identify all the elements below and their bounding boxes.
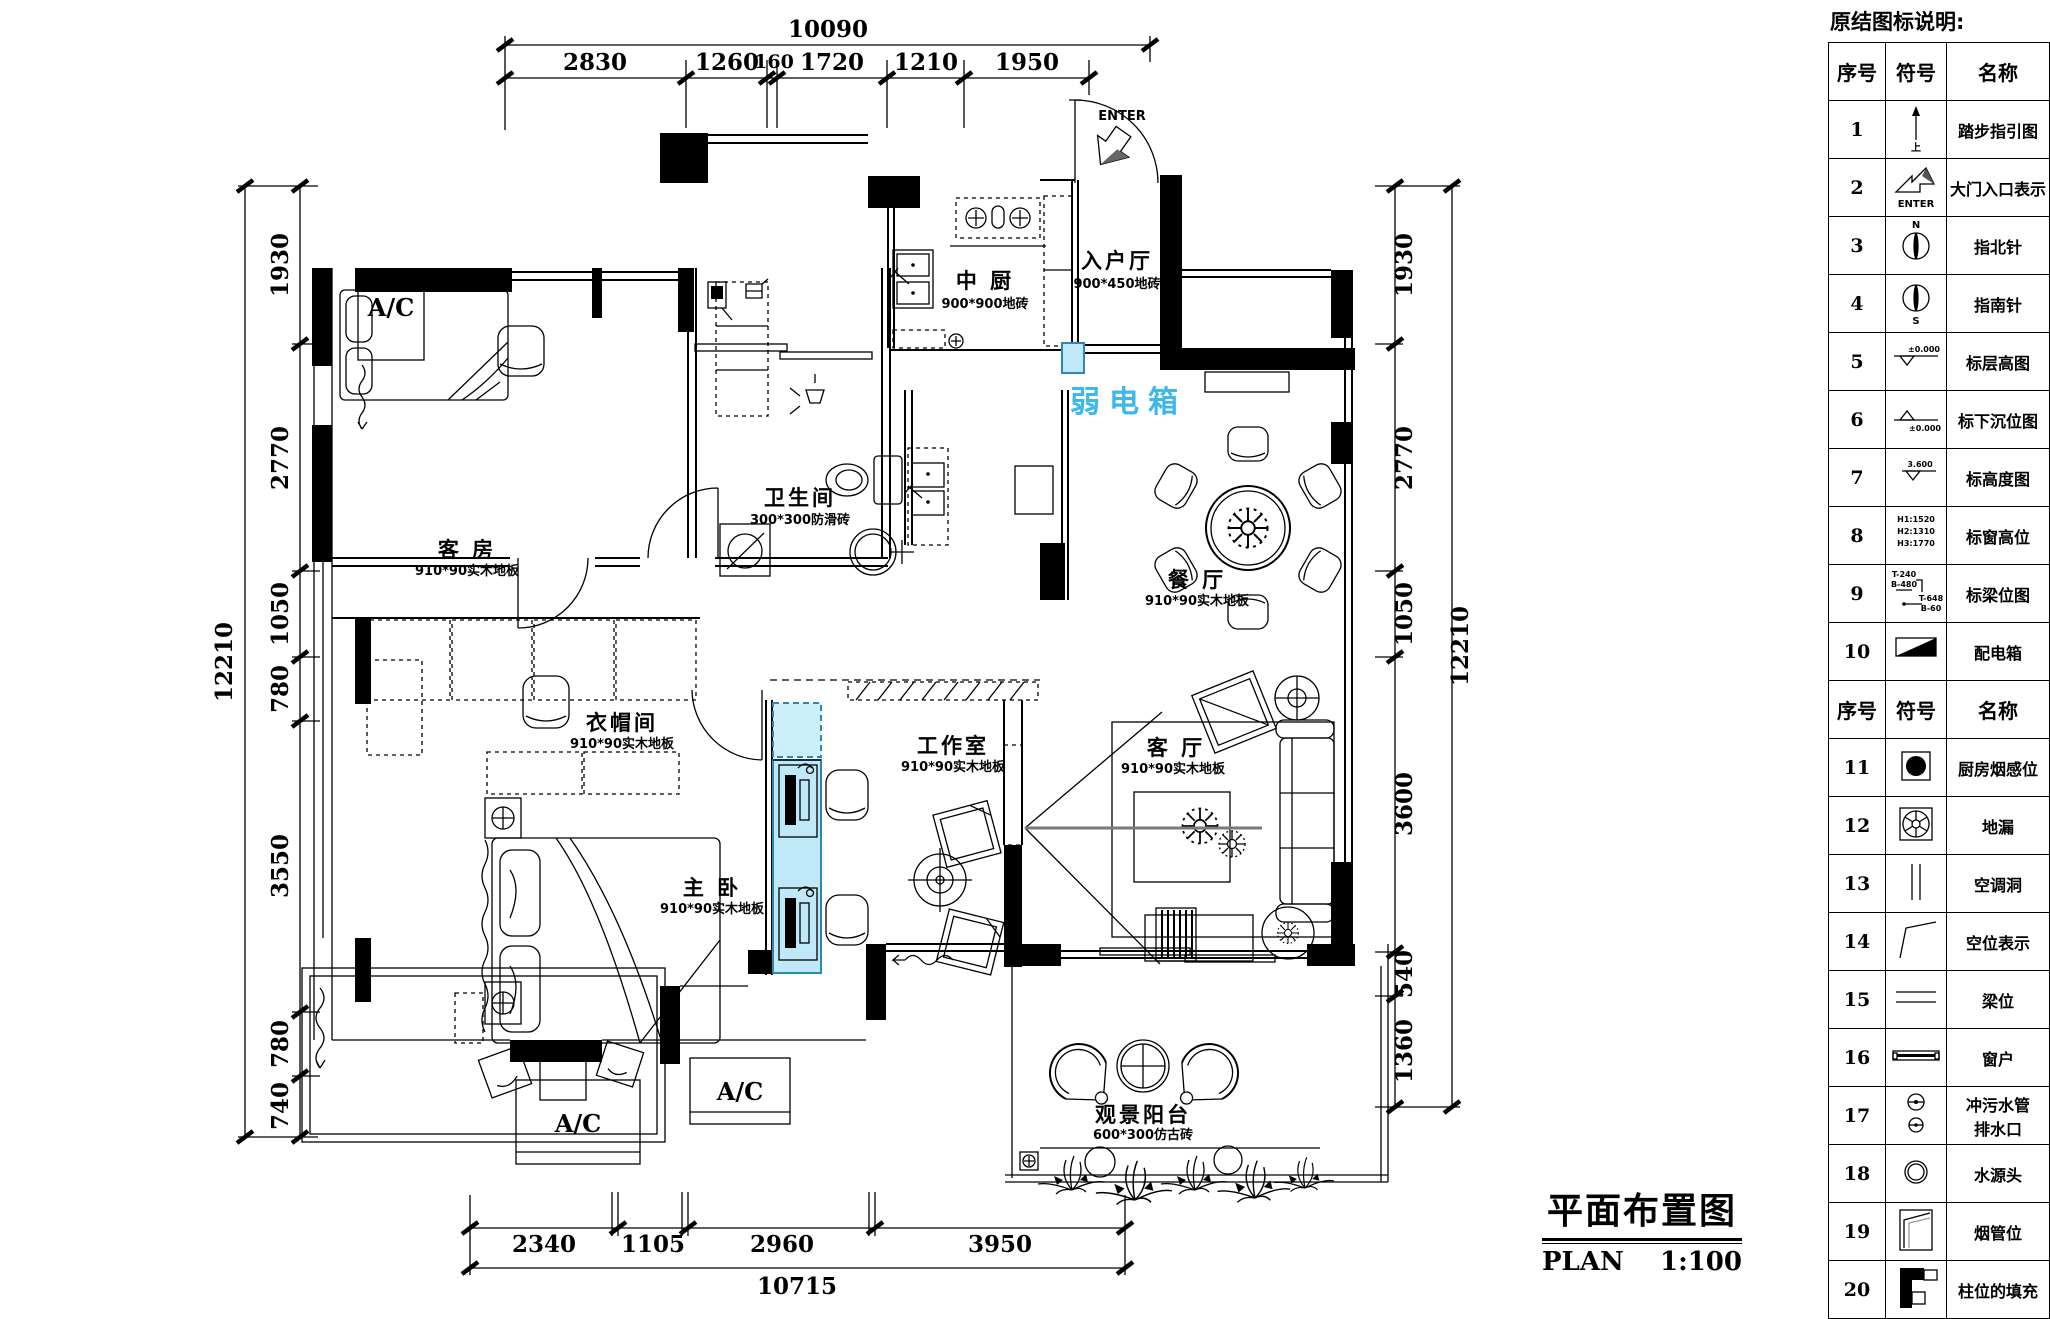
distribution-box-icon <box>1888 624 1944 676</box>
room-west-kitchen: 西 厨 900*900地砖 <box>905 448 1053 545</box>
kitchen-counter <box>893 330 945 348</box>
legend-panel: 原结图标说明: 序号 符号 名称 1 上 踏步指引图 2 ENTER 大门入口表… <box>1828 0 2050 1310</box>
ac-unit-low: A/C <box>516 1080 640 1164</box>
ac-unit-mid: A/C <box>690 1058 790 1124</box>
legend-name: 标窗高位 <box>1947 507 2050 565</box>
legend-header-symbol: 符号 <box>1886 681 1947 739</box>
column-fill-icon <box>1888 1262 1944 1314</box>
legend-name: 地漏 <box>1947 797 2050 855</box>
legend-no: 5 <box>1829 333 1886 391</box>
window-height-mark-icon: H1:1520H2:1310H3:1770 <box>1888 508 1944 560</box>
legend-symbol-text: T-240 <box>1892 570 1917 579</box>
enter-label: ENTER <box>1098 109 1146 124</box>
dim-right-seg: 1050 <box>1391 582 1418 646</box>
dim-left-seg: 3550 <box>267 834 294 898</box>
legend-row: 3 N 指北针 <box>1829 217 2050 275</box>
room-living: 客 厅 910*90实木地板 <box>1004 671 1334 964</box>
dimension-chain-left: 12210 1930 2770 1050 780 3550 780 740 <box>211 180 320 1143</box>
legend-row: 14 空位表示 <box>1829 913 2050 971</box>
legend-header-symbol: 符号 <box>1886 43 1947 101</box>
room-label: 观景阳台 <box>1095 1103 1191 1127</box>
legend-row: 13 空调洞 <box>1829 855 2050 913</box>
window-icon <box>1888 1030 1944 1082</box>
legend-symbol-text: B-60 <box>1921 604 1942 613</box>
coffee-table <box>1134 792 1230 882</box>
nightstand <box>485 798 521 838</box>
legend-name: 标高度图 <box>1947 449 2050 507</box>
legend-header-row: 序号 符号 名称 <box>1829 43 2050 101</box>
dim-left-seg: 780 <box>267 1020 294 1068</box>
legend-name: 标梁位图 <box>1947 565 2050 623</box>
room-label: 主 卧 <box>683 876 741 900</box>
legend-row: 9 T-240B-480T-648B-60 标梁位图 <box>1829 565 2050 623</box>
dim-top-seg: 1720 <box>800 49 864 76</box>
shower-head <box>790 374 824 414</box>
studio-window-beam <box>770 680 1040 700</box>
beam-position-mark-icon: T-240B-480T-648B-60 <box>1888 566 1944 618</box>
legend-no: 4 <box>1829 275 1886 333</box>
room-spec: 300*300防滑砖 <box>750 512 850 528</box>
legend-no: 18 <box>1829 1145 1886 1203</box>
legend-no: 1 <box>1829 101 1886 159</box>
legend-symbol-text: 上 <box>1911 141 1921 154</box>
legend-row: 8 H1:1520H2:1310H3:1770 标窗高位 <box>1829 507 2050 565</box>
legend-name-2line: 冲污水管排水口 <box>1947 1087 2050 1145</box>
legend-name: 窗户 <box>1947 1029 2050 1087</box>
sliding-door-kitchen <box>695 344 872 359</box>
dim-left-total: 12210 <box>211 622 238 702</box>
room-label: 衣帽间 <box>586 711 658 735</box>
drawing-scale: 1:100 <box>1660 1247 1742 1277</box>
north-compass-icon: N <box>1888 218 1944 270</box>
legend-row: 17 冲污水管排水口 <box>1829 1087 2050 1145</box>
desk-chair <box>826 895 868 945</box>
floor-drain-icon <box>1888 798 1944 850</box>
room-spec: 910*90实木地板 <box>901 759 1006 775</box>
legend-name: 排水口 <box>1947 1116 2049 1140</box>
legend-no: 8 <box>1829 507 1886 565</box>
legend-no: 16 <box>1829 1029 1886 1087</box>
guest-chair <box>498 326 544 376</box>
kitchen-smoke-detector-icon <box>1888 740 1944 792</box>
dim-left-seg: 1930 <box>267 233 294 297</box>
room-view-balcony: 观景阳台 600*300仿古砖 <box>1005 944 1388 1205</box>
dim-right-total: 12210 <box>1447 606 1474 686</box>
legend-name: 踏步指引图 <box>1947 101 2050 159</box>
dim-top-seg: 160 <box>754 51 794 73</box>
room-label: 客 房 <box>438 538 496 562</box>
beam-icon <box>1888 972 1944 1024</box>
legend-no: 7 <box>1829 449 1886 507</box>
legend-no: 11 <box>1829 739 1886 797</box>
legend-symbol-text: H3:1770 <box>1897 539 1935 548</box>
dim-left-seg: 740 <box>267 1082 294 1130</box>
desk-strip-highlight <box>773 703 821 973</box>
entrance-arrow-icon: ENTER <box>1888 160 1944 212</box>
room-dining: 餐 厅 910*90实木地板 <box>1145 427 1345 629</box>
ac-label: A/C <box>716 1077 764 1106</box>
legend-symbol-text: H1:1520 <box>1897 515 1935 524</box>
entry-bench <box>1205 372 1289 392</box>
legend-no: 14 <box>1829 913 1886 971</box>
room-spec: 910*90实木地板 <box>1145 593 1250 609</box>
legend-header-name: 名称 <box>1947 43 2050 101</box>
room-label: 工作室 <box>917 734 989 758</box>
dim-right-seg: 1930 <box>1391 233 1418 297</box>
dim-top-seg: 1260 <box>695 49 759 76</box>
legend-name: 梁位 <box>1947 971 2050 1029</box>
legend-symbol-text: ±0.000 <box>1908 345 1940 354</box>
dim-top-seg: 1210 <box>894 49 958 76</box>
master-door <box>692 690 762 760</box>
dim-right-seg: 2770 <box>1391 426 1418 490</box>
dimension-chain-right: 12210 1930 2770 1050 3600 540 1360 <box>1375 180 1474 1113</box>
legend-symbol-text: S <box>1912 316 1919 327</box>
dim-top-seg: 2830 <box>563 49 627 76</box>
legend-header-no: 序号 <box>1829 681 1886 739</box>
legend-name: 标下沉位图 <box>1947 391 2050 449</box>
switch-icons <box>708 279 768 320</box>
legend-row: 5 ±0.000 标层高图 <box>1829 333 2050 391</box>
legend-symbol-text: N <box>1912 220 1920 231</box>
legend-name: 空调洞 <box>1947 855 2050 913</box>
legend-no: 19 <box>1829 1203 1886 1261</box>
legend-header-name: 名称 <box>1947 681 2050 739</box>
balcony-table <box>1117 1040 1169 1092</box>
legend-symbol-text: B-480 <box>1891 580 1918 589</box>
empty-position-icon <box>1888 914 1944 966</box>
legend-symbol-text: ENTER <box>1898 199 1935 210</box>
dim-left-seg: 780 <box>267 665 294 713</box>
room-spec: 910*90实木地板 <box>415 563 520 579</box>
ac-label: A/C <box>554 1109 602 1138</box>
ac-label: A/C <box>367 293 415 322</box>
dim-right-seg: 540 <box>1391 950 1418 998</box>
step-guide-icon: 上 <box>1888 102 1944 154</box>
master-bed <box>482 838 720 1043</box>
drawing-code: PLAN <box>1542 1247 1624 1277</box>
room-label: 入户厅 <box>1081 249 1153 273</box>
legend-name: 空位表示 <box>1947 913 2050 971</box>
room-label: 餐 厅 <box>1168 568 1226 592</box>
room-spec: 600*300仿古砖 <box>1093 1127 1193 1143</box>
sunken-level-mark-icon: ±0.000 <box>1888 392 1944 444</box>
legend-row: 12 地漏 <box>1829 797 2050 855</box>
legend-no: 15 <box>1829 971 1886 1029</box>
kitchen-sink-cabinet <box>890 250 933 308</box>
legend-row: 16 窗户 <box>1829 1029 2050 1087</box>
room-spec: 910*90实木地板 <box>570 736 675 752</box>
room-spec: 910*90实木地板 <box>1121 761 1226 777</box>
legend-no: 10 <box>1829 623 1886 681</box>
ac-unit-top-left: A/C <box>358 272 424 429</box>
legend-table: 序号 符号 名称 1 上 踏步指引图 2 ENTER 大门入口表示 3 N 指北… <box>1828 42 2050 1319</box>
dim-bottom-total: 10715 <box>757 1273 837 1300</box>
floor-fan <box>1275 676 1319 720</box>
legend-row: 18 水源头 <box>1829 1145 2050 1203</box>
sewage-drain-icon <box>1888 1088 1944 1140</box>
legend-symbol-text: T-648 <box>1919 594 1944 603</box>
dim-bottom-seg: 2340 <box>512 1231 576 1258</box>
entry-door: ENTER <box>1069 100 1158 183</box>
sofa <box>1276 720 1334 922</box>
desk-chair <box>826 770 868 820</box>
floor-level-mark-icon: ±0.000 <box>1888 334 1944 386</box>
legend-name: 配电箱 <box>1947 623 2050 681</box>
legend-row: 4 S 指南针 <box>1829 275 2050 333</box>
dim-right-seg: 1360 <box>1391 1019 1418 1083</box>
room-master-bedroom: 主 卧 910*90实木地板 <box>455 798 765 1043</box>
room-label: 卫生间 <box>764 486 836 510</box>
legend-row: 10 配电箱 <box>1829 623 2050 681</box>
legend-no: 6 <box>1829 391 1886 449</box>
tv-bench <box>1145 908 1253 961</box>
dim-left-seg: 2770 <box>267 426 294 490</box>
legend-symbol-text: ±0.000 <box>1909 424 1941 433</box>
room-spec: 910*90实木地板 <box>660 901 765 917</box>
floor-plan-drawing: 10090 2830 1260 160 1720 1210 1950 12210… <box>0 0 1760 1310</box>
legend-row: 11 厨房烟感位 <box>1829 739 2050 797</box>
legend-row: 1 上 踏步指引图 <box>1829 101 2050 159</box>
dim-left-seg: 1050 <box>267 582 294 646</box>
legend-name: 指北针 <box>1947 217 2050 275</box>
weak-current-label: 弱电箱 <box>1070 385 1187 420</box>
dim-bottom-seg: 2960 <box>750 1231 814 1258</box>
studio-table <box>933 801 1001 868</box>
title-block: 平面布置图 PLAN 1:100 <box>1542 1182 1742 1277</box>
dim-right-seg: 3600 <box>1391 772 1418 836</box>
legend-row: 2 ENTER 大门入口表示 <box>1829 159 2050 217</box>
room-studio: 工作室 910*90实木地板 <box>773 703 1006 975</box>
dimension-chain-bottom: 2340 1105 2960 3950 10715 <box>462 1192 1133 1300</box>
legend-symbol-text: H2:1310 <box>1897 527 1935 536</box>
legend-name: 厨房烟感位 <box>1947 739 2050 797</box>
legend-row: 15 梁位 <box>1829 971 2050 1029</box>
water-source-icon <box>1888 1146 1944 1198</box>
south-compass-icon: S <box>1888 276 1944 328</box>
dim-bottom-seg: 1105 <box>621 1231 685 1258</box>
dim-top-total: 10090 <box>788 16 868 43</box>
legend-name: 水源头 <box>1947 1145 2050 1203</box>
dim-top-seg: 1950 <box>995 49 1059 76</box>
breakfast-table: 西 厨 900*900地砖 <box>1015 466 1053 514</box>
flue-position-icon <box>1888 1204 1944 1256</box>
legend-title: 原结图标说明: <box>1830 6 2050 36</box>
room-central-kitchen: 中 厨 900*900地砖 <box>890 198 1046 348</box>
enter-arrow-icon <box>1085 121 1139 176</box>
legend-symbol-text: 3.600 <box>1907 460 1933 469</box>
legend-name: 大门入口表示 <box>1947 159 2050 217</box>
shoe-cabinet <box>1044 196 1072 346</box>
legend-name: 冲污水管 <box>1947 1092 2049 1116</box>
legend-header-no: 序号 <box>1829 43 1886 101</box>
legend-name: 指南针 <box>1947 275 2050 333</box>
dimension-chain-top: 10090 2830 1260 160 1720 1210 1950 <box>497 16 1158 130</box>
legend-row: 19 烟管位 <box>1829 1203 2050 1261</box>
legend-no: 3 <box>1829 217 1886 275</box>
curtain-squiggle <box>316 988 325 1068</box>
legend-header-row: 序号 符号 名称 <box>1829 681 2050 739</box>
dim-bottom-seg: 3950 <box>968 1231 1032 1258</box>
room-cloakroom: 衣帽间 910*90实木地板 <box>367 620 762 794</box>
legend-row: 6 ±0.000 标下沉位图 <box>1829 391 2050 449</box>
legend-name: 烟管位 <box>1947 1203 2050 1261</box>
height-mark-icon: 3.600 <box>1888 450 1944 502</box>
bathroom-door <box>648 488 718 558</box>
legend-no: 12 <box>1829 797 1886 855</box>
drawing-title: 平面布置图 <box>1542 1182 1742 1241</box>
legend-name: 标层高图 <box>1947 333 2050 391</box>
room-label: 客 厅 <box>1147 736 1205 760</box>
room-spec: 900*900地砖 <box>941 296 1028 312</box>
floor-drain <box>1020 1152 1038 1170</box>
legend-no: 17 <box>1829 1087 1886 1145</box>
legend-no: 9 <box>1829 565 1886 623</box>
room-label: 中 厨 <box>956 269 1014 293</box>
studio-table <box>936 909 1003 975</box>
room-guest: 客 房 910*90实木地板 <box>340 290 588 628</box>
ac-hole-icon <box>1888 856 1944 908</box>
washing-machine <box>720 524 770 576</box>
legend-no: 13 <box>1829 855 1886 913</box>
legend-row: 7 3.600 标高度图 <box>1829 449 2050 507</box>
cloakroom-chair <box>523 676 569 728</box>
room-spec: 900*450地砖 <box>1073 276 1160 292</box>
legend-no: 2 <box>1829 159 1886 217</box>
